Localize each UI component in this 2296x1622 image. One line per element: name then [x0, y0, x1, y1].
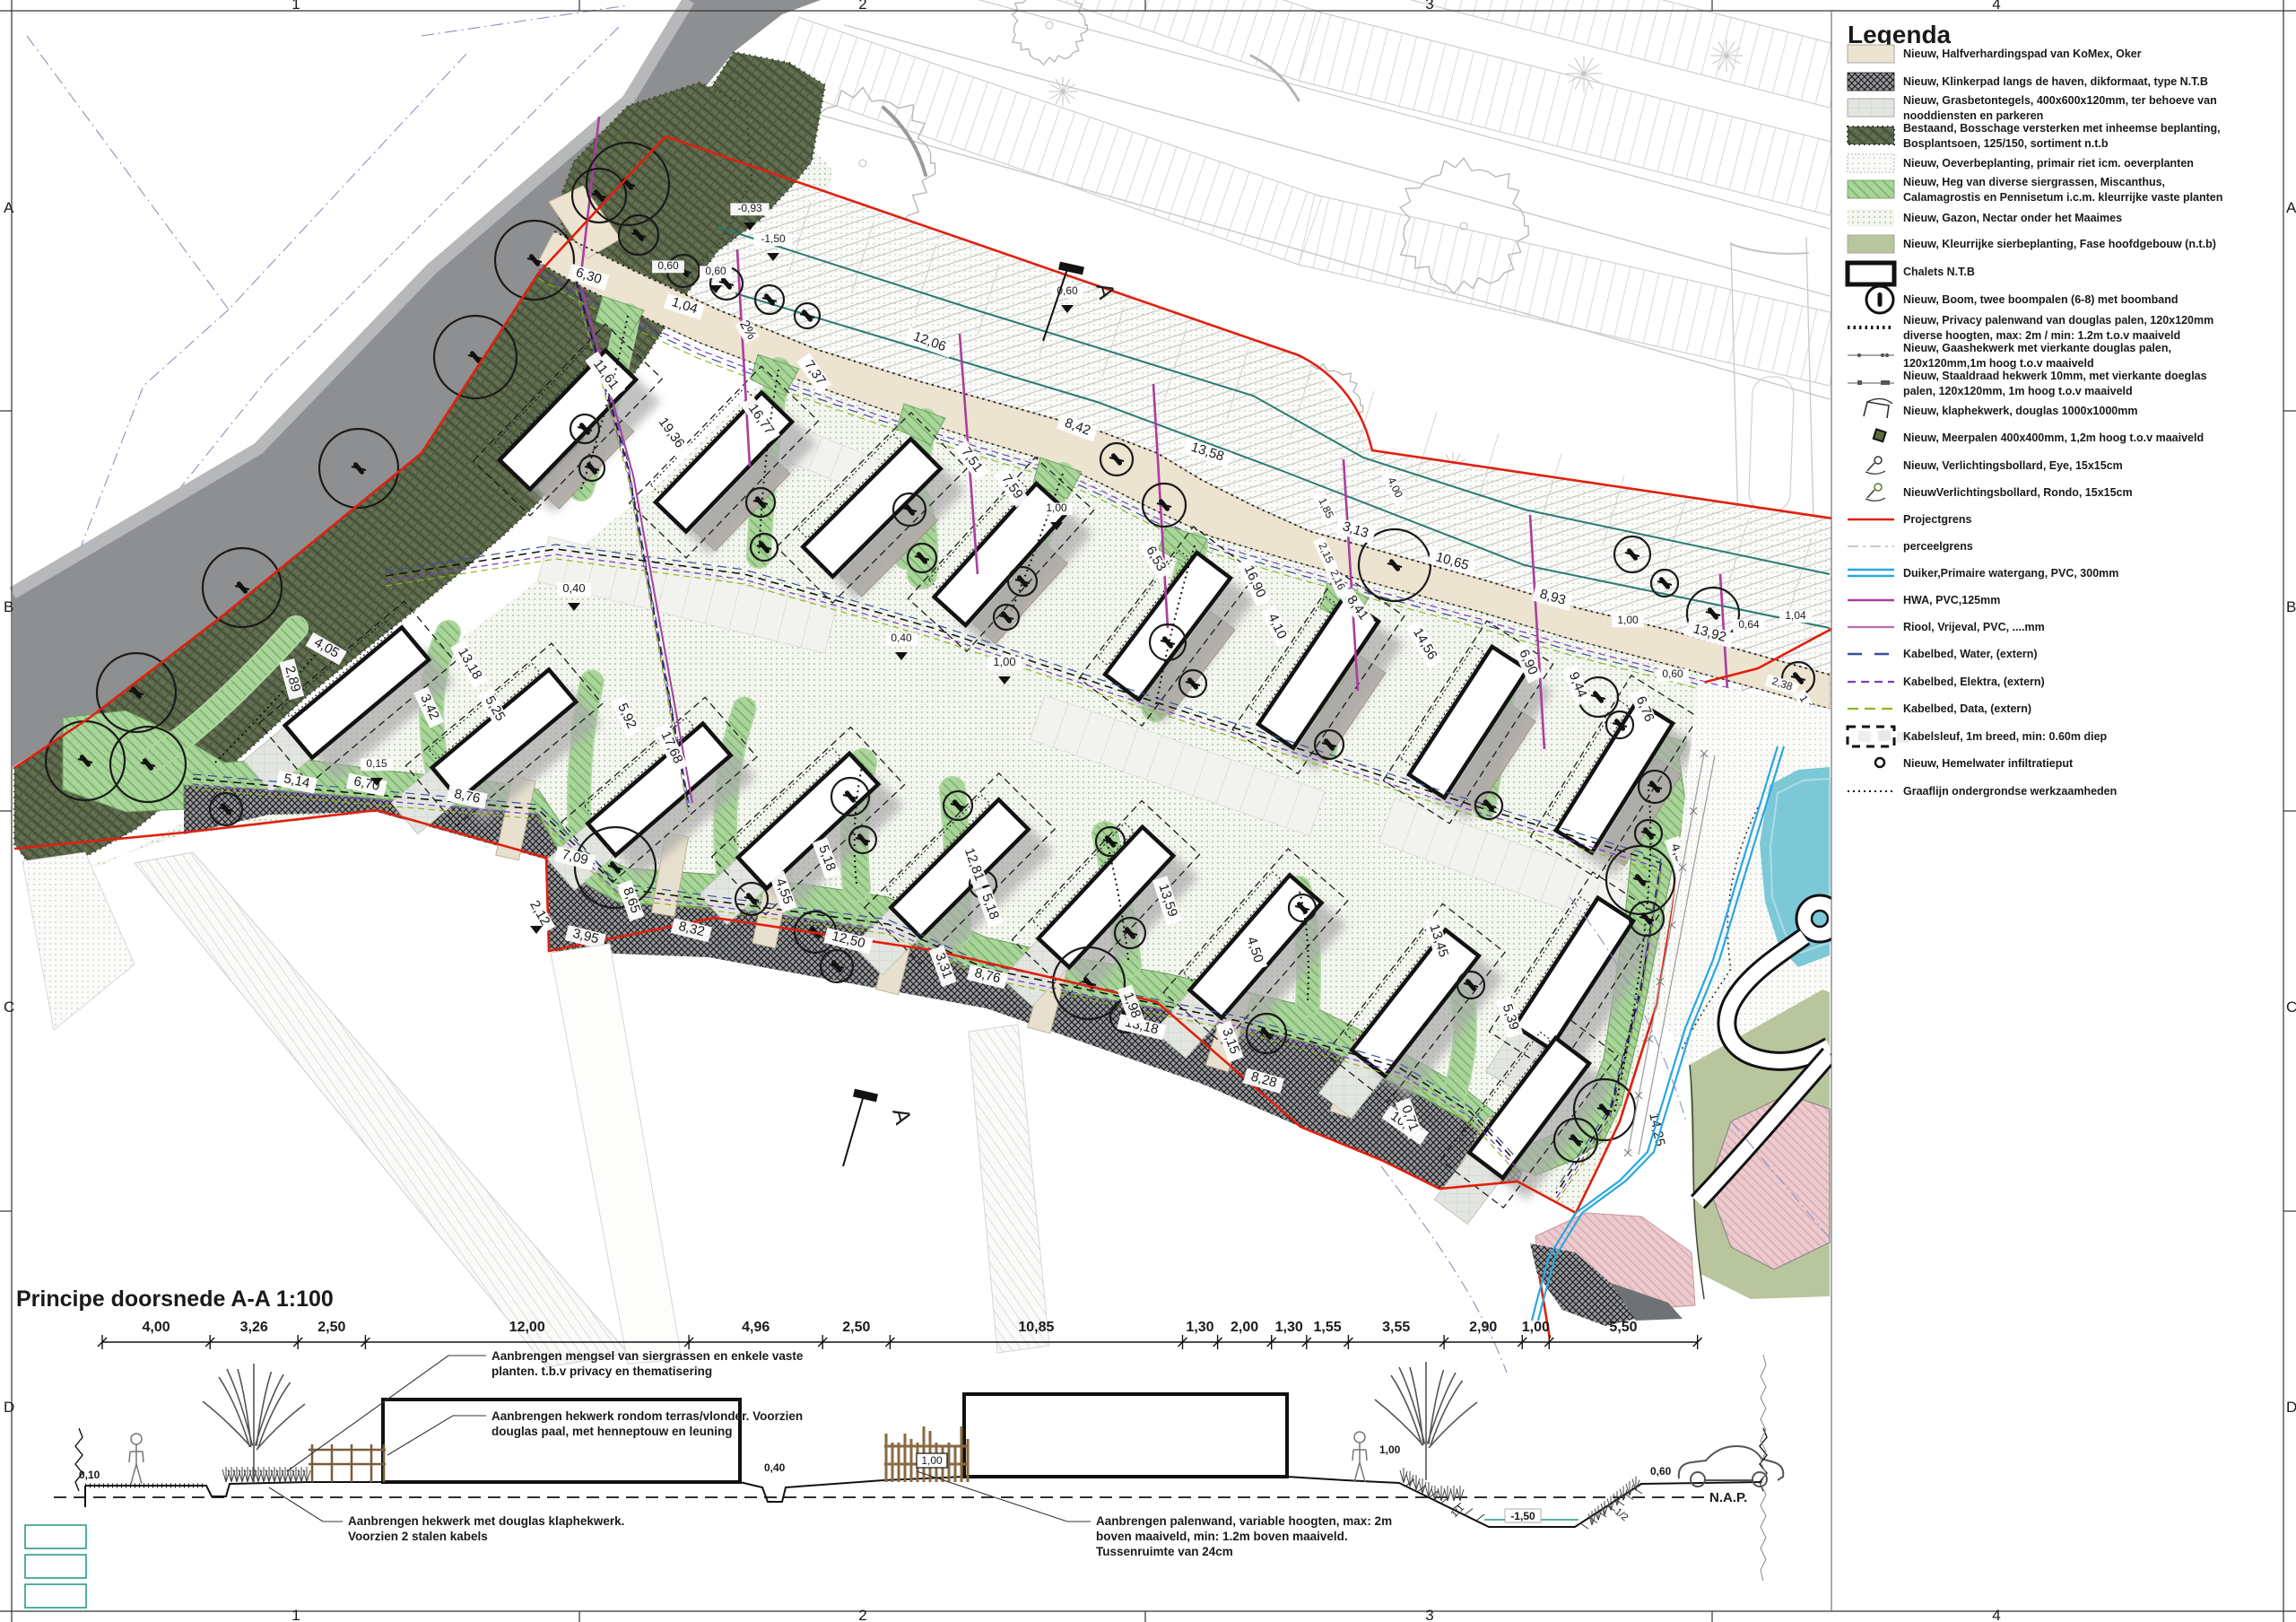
svg-text:1,00: 1,00	[1379, 1443, 1401, 1456]
svg-text:-1,50: -1,50	[1510, 1510, 1535, 1522]
svg-text:boven maaiveld, min: 1.2m bove: boven maaiveld, min: 1.2m boven maaiveld…	[1096, 1530, 1348, 1543]
svg-text:0,15: 0,15	[366, 757, 387, 770]
svg-text:3: 3	[1425, 0, 1433, 13]
svg-text:A: A	[4, 199, 14, 216]
svg-text:N.A.P.: N.A.P.	[1709, 1490, 1747, 1505]
svg-text:0,10: 0,10	[79, 1469, 100, 1481]
svg-text:4,00: 4,00	[143, 1320, 170, 1335]
svg-text:0,60: 0,60	[657, 259, 679, 272]
svg-text:NieuwVerlichtingsbollard, Rond: NieuwVerlichtingsbollard, Rondo, 15x15cm	[1903, 486, 2133, 499]
svg-text:Aanbrengen mengsel van siergra: Aanbrengen mengsel van siergrassen en en…	[491, 1349, 804, 1363]
svg-text:Projectgrens: Projectgrens	[1903, 513, 1971, 526]
svg-text:-0,93: -0,93	[737, 202, 762, 214]
svg-text:Duiker,Primaire watergang, PVC: Duiker,Primaire watergang, PVC, 300mm	[1903, 567, 2118, 580]
svg-text:diverse hoogten, max: 2m / min: diverse hoogten, max: 2m / min: 1.2m t.o…	[1903, 329, 2180, 342]
svg-text:Nieuw, Gazon, Nectar onder het: Nieuw, Gazon, Nectar onder het Maaimes	[1903, 212, 2122, 224]
svg-text:2,50: 2,50	[842, 1320, 870, 1335]
svg-text:A: A	[2286, 199, 2296, 216]
svg-text:1: 1	[291, 0, 300, 13]
svg-text:D: D	[4, 1399, 14, 1416]
svg-text:Nieuw, klaphekwerk, douglas 10: Nieuw, klaphekwerk, douglas 1000x1000mm	[1903, 405, 2137, 417]
svg-text:Aanbrengen hekwerk rondom terr: Aanbrengen hekwerk rondom terras/vlonder…	[491, 1409, 803, 1423]
svg-text:Bestaand, Bosschage versterken: Bestaand, Bosschage versterken met inhee…	[1903, 122, 2221, 135]
svg-text:Nieuw, Grasbetontegels, 400x60: Nieuw, Grasbetontegels, 400x600x120mm, t…	[1903, 94, 2217, 107]
svg-text:B: B	[4, 598, 13, 615]
svg-text:C: C	[2286, 998, 2296, 1016]
svg-text:0,40: 0,40	[764, 1461, 786, 1474]
svg-text:1,30: 1,30	[1275, 1320, 1303, 1335]
svg-text:Nieuw, Privacy palenwand van d: Nieuw, Privacy palenwand van douglas pal…	[1903, 314, 2213, 327]
svg-text:3,26: 3,26	[240, 1320, 268, 1335]
svg-text:Nieuw, Meerpalen 400x400mm, 1,: Nieuw, Meerpalen 400x400mm, 1,2m hoog t.…	[1903, 432, 2204, 444]
svg-text:0,60: 0,60	[1650, 1465, 1672, 1478]
svg-text:Nieuw, Kleurrijke sierbeplanti: Nieuw, Kleurrijke sierbeplanting, Fase h…	[1903, 238, 2216, 250]
svg-text:Calamagrostis en Pennisetum i.: Calamagrostis en Pennisetum i.c.m. kleur…	[1903, 191, 2222, 204]
svg-text:Tussenruimte van 24cm: Tussenruimte van 24cm	[1096, 1545, 1233, 1558]
svg-text:Nieuw, Hemelwater infiltratiep: Nieuw, Hemelwater infiltratieput	[1903, 757, 2074, 770]
svg-text:1,00: 1,00	[1617, 614, 1639, 626]
svg-text:5,50: 5,50	[1609, 1320, 1637, 1335]
svg-text:2,00: 2,00	[1231, 1320, 1258, 1335]
svg-text:Voorzien 2 stalen kabels: Voorzien 2 stalen kabels	[348, 1530, 488, 1543]
svg-text:3: 3	[1425, 1607, 1433, 1622]
svg-text:Aanbrengen palenwand, variable: Aanbrengen palenwand, variable hoogten, …	[1096, 1514, 1392, 1528]
svg-text:3,55: 3,55	[1382, 1320, 1410, 1335]
svg-text:planten. t.b.v privacy en them: planten. t.b.v privacy en thematisering	[491, 1365, 712, 1378]
svg-text:Riool, Vrijeval, PVC, ....mm: Riool, Vrijeval, PVC, ....mm	[1903, 621, 2045, 633]
svg-text:0,64: 0,64	[1738, 618, 1760, 631]
svg-text:2,50: 2,50	[317, 1320, 345, 1335]
svg-text:Bosplantsoen, 125/150, sortime: Bosplantsoen, 125/150, sortiment n.t.b	[1903, 137, 2109, 150]
svg-text:2: 2	[858, 1607, 866, 1622]
svg-text:2: 2	[858, 0, 866, 13]
svg-text:B: B	[2286, 598, 2296, 615]
svg-text:0,40: 0,40	[891, 632, 912, 644]
svg-text:D: D	[2286, 1399, 2296, 1416]
svg-text:1,00: 1,00	[993, 655, 1015, 668]
svg-text:Nieuw, Klinkerpad langs de hav: Nieuw, Klinkerpad langs de haven, dikfor…	[1903, 75, 2208, 88]
svg-text:1,00: 1,00	[1522, 1320, 1550, 1335]
svg-text:Nieuw, Oeverbeplanting, primai: Nieuw, Oeverbeplanting, primair riet icm…	[1903, 157, 2194, 170]
svg-text:1,00: 1,00	[921, 1454, 943, 1467]
svg-text:Kabelsleuf, 1m breed, min: 0.6: Kabelsleuf, 1m breed, min: 0.60m diep	[1903, 730, 2108, 743]
svg-text:1,04: 1,04	[1785, 609, 1806, 622]
svg-text:4,96: 4,96	[742, 1320, 770, 1335]
svg-text:1,55: 1,55	[1314, 1320, 1342, 1335]
svg-text:Nieuw, Gaashekwerk met vierkan: Nieuw, Gaashekwerk met vierkante douglas…	[1903, 342, 2171, 354]
svg-text:Nieuw, Halfverhardingspad van: Nieuw, Halfverhardingspad van KoMex, Oke…	[1903, 48, 2142, 60]
svg-text:perceelgrens: perceelgrens	[1903, 540, 1973, 553]
svg-text:0,60: 0,60	[1662, 667, 1683, 680]
svg-text:Nieuw, Heg van diverse siergra: Nieuw, Heg van diverse siergrassen, Misc…	[1903, 176, 2165, 188]
svg-text:Nieuw, Boom, twee boompalen (6: Nieuw, Boom, twee boompalen (6-8) met bo…	[1903, 293, 2179, 306]
svg-text:Principe doorsnede A-A 1:100: Principe doorsnede A-A 1:100	[16, 1286, 334, 1312]
svg-text:Graaflijn ondergrondse werkzaa: Graaflijn ondergrondse werkzaamheden	[1903, 785, 2117, 798]
svg-text:1: 1	[291, 1607, 300, 1622]
svg-text:2,90: 2,90	[1469, 1320, 1497, 1335]
svg-text:Legenda: Legenda	[1848, 21, 1952, 48]
svg-text:C: C	[4, 998, 14, 1016]
svg-text:nooddiensten en parkeren: nooddiensten en parkeren	[1903, 109, 2043, 122]
svg-text:Kabelbed, Data, (extern): Kabelbed, Data, (extern)	[1903, 702, 2031, 715]
svg-text:4: 4	[1992, 0, 2000, 13]
svg-text:palen, 120x120mm, 1m hoog t.o.: palen, 120x120mm, 1m hoog t.o.v maaiveld	[1903, 385, 2133, 397]
svg-text:1,00: 1,00	[1046, 501, 1067, 514]
svg-text:-1,50: -1,50	[761, 232, 786, 245]
svg-text:120x120mm,1m hoog t.o.v maaive: 120x120mm,1m hoog t.o.v maaiveld	[1903, 357, 2094, 370]
svg-text:Aanbrengen hekwerk met douglas: Aanbrengen hekwerk met douglas klaphekwe…	[348, 1514, 624, 1528]
svg-text:0,40: 0,40	[562, 581, 585, 595]
svg-text:10,85: 10,85	[1018, 1320, 1054, 1335]
svg-text:douglas paal, met henneptouw e: douglas paal, met henneptouw en leuning	[491, 1425, 733, 1438]
svg-text:Nieuw, Staaldraad hekwerk 10mm: Nieuw, Staaldraad hekwerk 10mm, met vier…	[1903, 370, 2207, 382]
svg-text:Chalets N.T.B: Chalets N.T.B	[1903, 266, 1975, 278]
svg-text:HWA, PVC,125mm: HWA, PVC,125mm	[1903, 594, 2000, 606]
svg-text:Kabelbed, Elektra, (extern): Kabelbed, Elektra, (extern)	[1903, 676, 2045, 688]
svg-text:12,00: 12,00	[509, 1320, 545, 1335]
svg-text:4: 4	[1992, 1607, 2000, 1622]
svg-text:1,30: 1,30	[1186, 1320, 1213, 1335]
svg-text:Nieuw, Verlichtingsbollard, Ey: Nieuw, Verlichtingsbollard, Eye, 15x15cm	[1903, 459, 2123, 472]
svg-text:0,60: 0,60	[705, 265, 726, 277]
svg-text:Kabelbed, Water, (extern): Kabelbed, Water, (extern)	[1903, 648, 2038, 660]
